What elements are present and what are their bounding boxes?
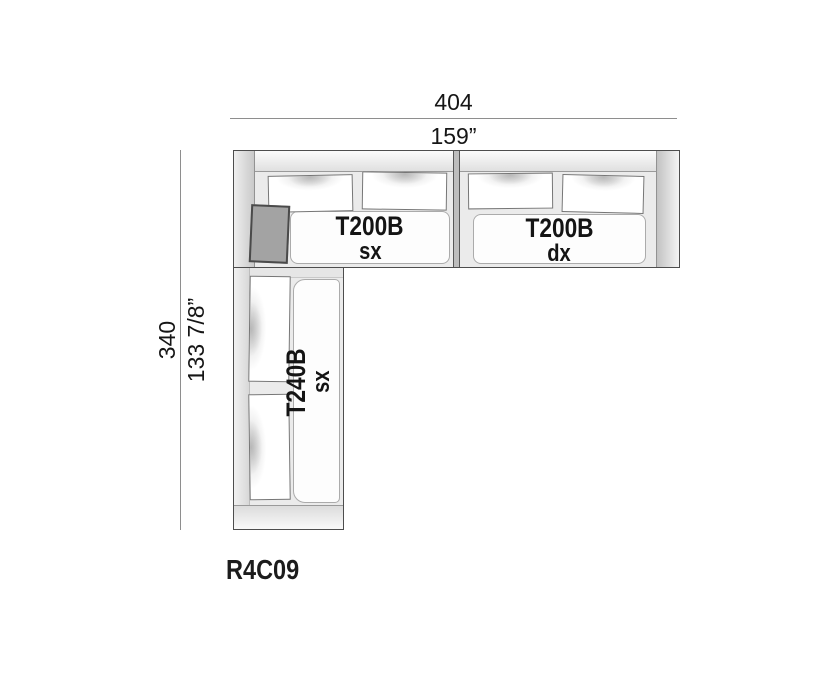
right-armrest	[656, 151, 679, 267]
module-label-t200b-dx: T200B dx	[473, 215, 646, 266]
width-dimension-line	[230, 118, 677, 119]
depth-dimension-inches: 133 7/8”	[183, 150, 211, 530]
module-variant-text: sx	[310, 371, 334, 393]
pillow	[562, 174, 645, 214]
pillow	[362, 171, 448, 210]
module-code-text: T200B	[525, 215, 593, 241]
module-code-text: T240B	[283, 348, 309, 416]
module-variant-text: dx	[548, 242, 572, 266]
module-label-t240b-sx: T240B sx	[283, 282, 335, 482]
sofa-left-section: T240B sx	[233, 268, 344, 530]
pillow	[468, 173, 553, 210]
product-code: R4C09	[226, 554, 313, 586]
chaise-foot-strip	[234, 505, 343, 529]
width-dimension-cm: 404	[230, 89, 677, 116]
sofa-top-section: T200B sx T200B dx	[233, 150, 680, 268]
sofa-plan-diagram: 404 159” 340 133 7/8” T200B sx T200B dx	[0, 0, 840, 679]
product-code-text: R4C09	[226, 554, 299, 586]
corner-cushion	[249, 204, 290, 264]
module-code-text: T200B	[336, 213, 404, 239]
module-label-t200b-sx: T200B sx	[290, 213, 450, 264]
width-dimension-inches: 159”	[230, 123, 677, 150]
left-backrest	[234, 268, 250, 505]
module-divider	[453, 151, 460, 267]
depth-dimension-cm: 340	[154, 150, 182, 530]
module-variant-text: sx	[359, 240, 381, 264]
